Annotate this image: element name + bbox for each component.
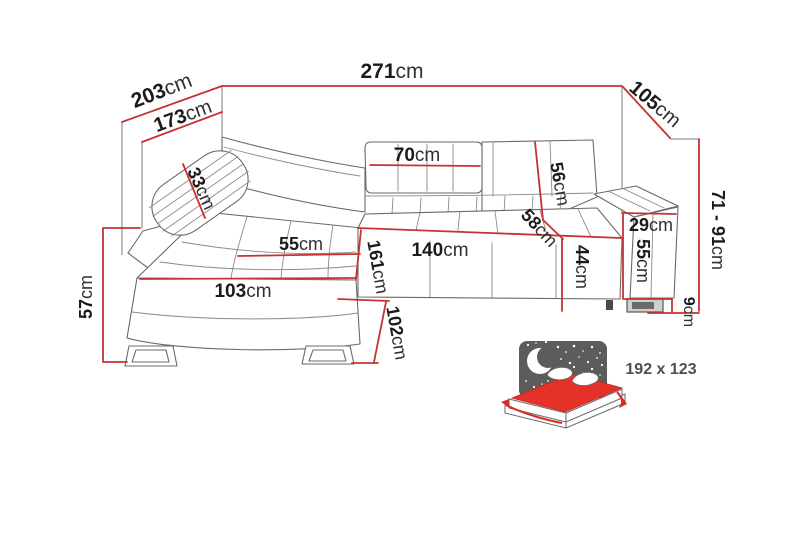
- dim-line-103: [140, 278, 355, 279]
- label-seat-width: 140cm: [411, 240, 468, 261]
- dim-line-29: [622, 213, 676, 214]
- label-chaise-front-length: 103cm: [214, 281, 271, 302]
- label-seat-height: 44cm: [572, 245, 592, 289]
- label-armrest-height: 55cm: [633, 239, 653, 283]
- label-front-height: 102cm: [382, 305, 411, 362]
- diagram-canvas: 271cm 203cm 173cm 105cm 71 - 91cm 33cm 7…: [0, 0, 800, 533]
- label-height-range: 71 - 91cm: [708, 190, 728, 270]
- label-chaise-seat-width: 55cm: [279, 234, 323, 254]
- sleeping-size-label: 192 x 123: [625, 361, 696, 378]
- label-armrest-width: 29cm: [629, 215, 673, 235]
- label-leg-height: 9cm: [680, 297, 697, 327]
- label-width-total: 271cm: [360, 60, 423, 83]
- label-headrest-width: 70cm: [394, 145, 440, 166]
- sleeping-function-icon: 192 x 123: [501, 341, 697, 428]
- sofa-dimension-diagram: 271cm 203cm 173cm 105cm 71 - 91cm 33cm 7…: [0, 0, 800, 533]
- label-chaise-height: 57cm: [76, 275, 96, 319]
- label-side-depth: 105cm: [625, 77, 685, 132]
